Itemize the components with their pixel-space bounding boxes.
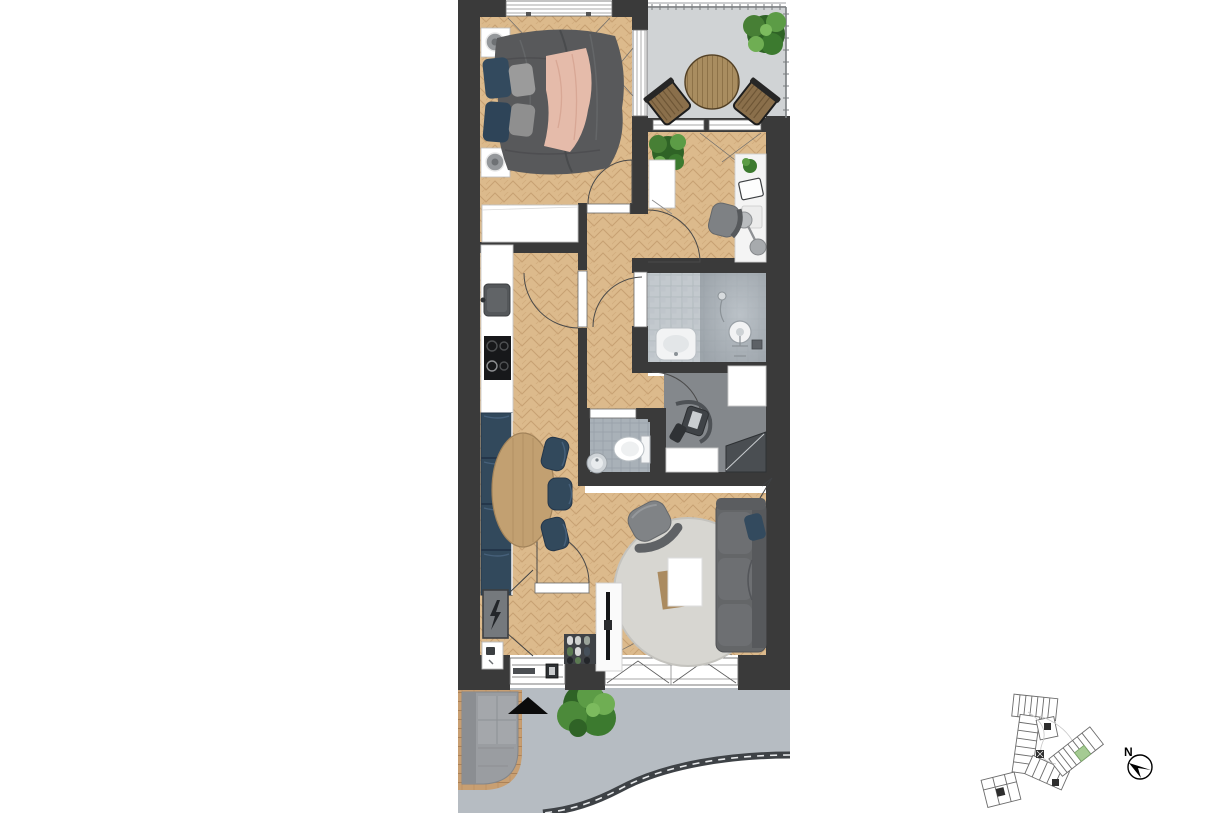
kitchen [481,245,514,421]
floor-plan-svg: N [0,0,1220,813]
intercom-panel [482,642,503,669]
site-plan [981,694,1103,807]
storage-cabinet-bottom [666,448,718,472]
page: { "compass": { "label": "N" }, "colors":… [0,0,1220,813]
outdoor-sofa [462,692,518,784]
kitchen-door-threshold [578,271,587,327]
bathroom-door-threshold [634,272,647,327]
bathroom-sink [656,328,696,360]
office-desk [735,154,766,262]
street-area [458,683,790,813]
balcony-table [685,55,739,109]
hall-door-threshold [535,583,589,593]
sofa [716,478,772,652]
wc-sink [587,453,607,473]
bathroom-shower-zone [700,272,766,366]
balcony-plant [743,12,786,55]
wc-door-threshold [590,409,636,418]
entrance-door [510,658,565,684]
cooktop [484,336,511,380]
bedroom-wardrobe [482,205,578,242]
floorplan-canvas: N [0,0,1220,813]
laptop [738,178,763,200]
tv-sideboard [596,583,622,671]
north-compass: N [1124,745,1152,779]
bedroom-door-threshold [587,204,630,213]
shoe-rack [564,634,596,664]
kitchen-counter [481,245,513,421]
storage-cabinet-top [728,366,766,406]
bed [482,29,624,174]
north-label: N [1124,745,1133,759]
kitchen-sink [481,284,511,316]
